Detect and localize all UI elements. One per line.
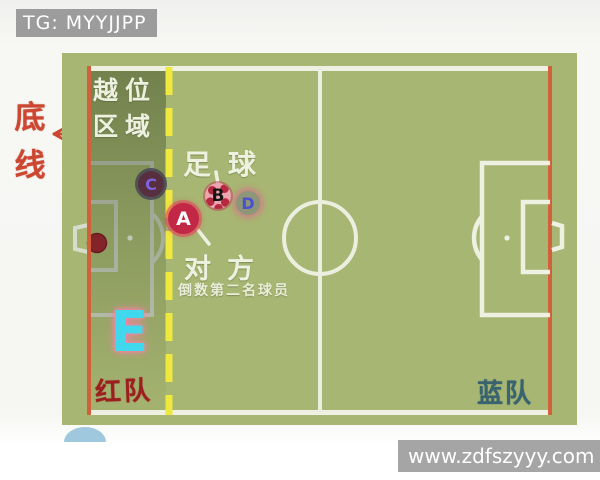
offside-area-line1: 越位 — [93, 73, 157, 109]
telegram-tag-banner: TG: MYYJJPP — [16, 9, 157, 37]
right-penalty-spot — [504, 235, 509, 240]
watermark-url: www.zdfszyyy.com — [398, 440, 600, 472]
player-c-label: C — [145, 175, 157, 194]
left-goal-line-red — [87, 66, 91, 415]
soccer-pitch-diagram: 越位 区域 足球 对方 倒数第二名球员 E 红队 蓝队 C A B D — [62, 53, 577, 425]
right-goal-line-red — [548, 66, 552, 415]
second-last-player-label: 倒数第二名球员 — [178, 280, 290, 300]
opponent-pointer-line — [198, 230, 209, 244]
player-a-label: A — [176, 208, 191, 230]
ball-b-chip: B — [205, 183, 231, 209]
offside-area-line2: 区域 — [93, 109, 157, 145]
football-label: 足球 — [183, 143, 273, 183]
offside-area-label: 越位 区域 — [93, 73, 157, 145]
player-c-chip: C — [138, 171, 164, 197]
player-d-label: D — [241, 194, 254, 213]
endline-label: 底线 — [12, 94, 48, 190]
marker-e: E — [110, 303, 148, 363]
screenshot-stage: TG: MYYJJPP 底线 — [0, 0, 600, 480]
player-a-chip: A — [168, 203, 199, 234]
halfway-line — [318, 68, 322, 413]
ball-b-label: B — [212, 186, 225, 206]
player-d-chip: D — [236, 191, 260, 215]
cropped-logo-shape — [64, 427, 106, 442]
red-team-label: 红队 — [94, 370, 153, 409]
blue-team-label: 蓝队 — [477, 373, 533, 410]
